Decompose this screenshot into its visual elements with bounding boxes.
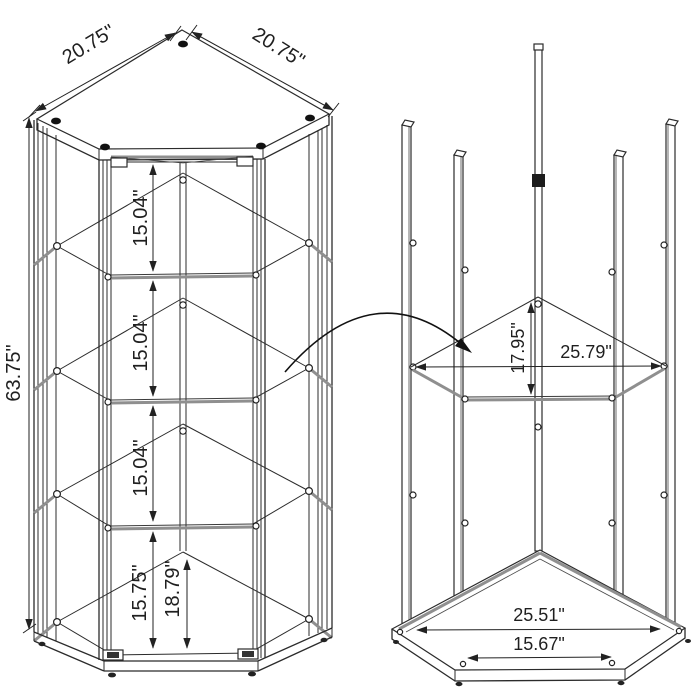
dim-top-edge-right-label: 20.75" (248, 23, 308, 72)
dim-shelf-depth-label: 17.95" (508, 322, 528, 373)
dim-gap-top-label: 15.04" (130, 189, 152, 246)
dim-overall-height-label: 63.75" (3, 344, 25, 401)
door-top-hinge-left (111, 158, 127, 167)
door-top-hinge-right (237, 157, 253, 166)
glass-shelf-1 (34, 173, 332, 280)
door-bottom-hinge-right-pin (242, 651, 254, 657)
door-bottom-hinge-left-pin (107, 652, 119, 658)
technical-drawing-page: 20.75" 20.75" 63.75" 15.04" 15.04" 15.04… (0, 0, 700, 700)
post-left-outer (402, 120, 416, 630)
dim-gap-lower-label: 15.04" (130, 439, 152, 496)
post-right-inner (609, 150, 626, 657)
dim-top-edge-left-label: 20.75" (59, 21, 119, 69)
glass-shelf-3 (34, 424, 332, 531)
dimension-shelf-depth: 17.95" (508, 303, 531, 394)
dim-gap-bottom-back-label: 18.79" (162, 560, 184, 617)
center-post-connector (532, 174, 545, 187)
curio-cabinet-dimension-diagram: 20.75" 20.75" 63.75" 15.04" 15.04" 15.04… (0, 0, 700, 700)
dim-gap-middle-label: 15.04" (130, 314, 152, 371)
dimension-shelf-gaps: 15.04" 15.04" 15.04" 15.75" 18.79" (129, 165, 187, 648)
dim-base-span-inner-label: 15.67" (513, 634, 564, 654)
dimension-overall-height: 63.75" (3, 112, 36, 633)
frame-assembly-view: 17.95" 25.79" 25.51" 15.67" (392, 44, 691, 686)
post-right-outer (661, 119, 678, 629)
post-left-inner (454, 150, 468, 658)
dim-gap-bottom-front-label: 15.75" (129, 564, 151, 621)
assembled-cabinet-view: 20.75" 20.75" 63.75" 15.04" 15.04" 15.04… (3, 21, 339, 678)
dim-base-span-outer-label: 25.51" (513, 605, 564, 625)
dim-shelf-span-label: 25.79" (560, 342, 611, 362)
installation-arrow (285, 313, 472, 372)
glass-shelf-2 (34, 298, 332, 405)
